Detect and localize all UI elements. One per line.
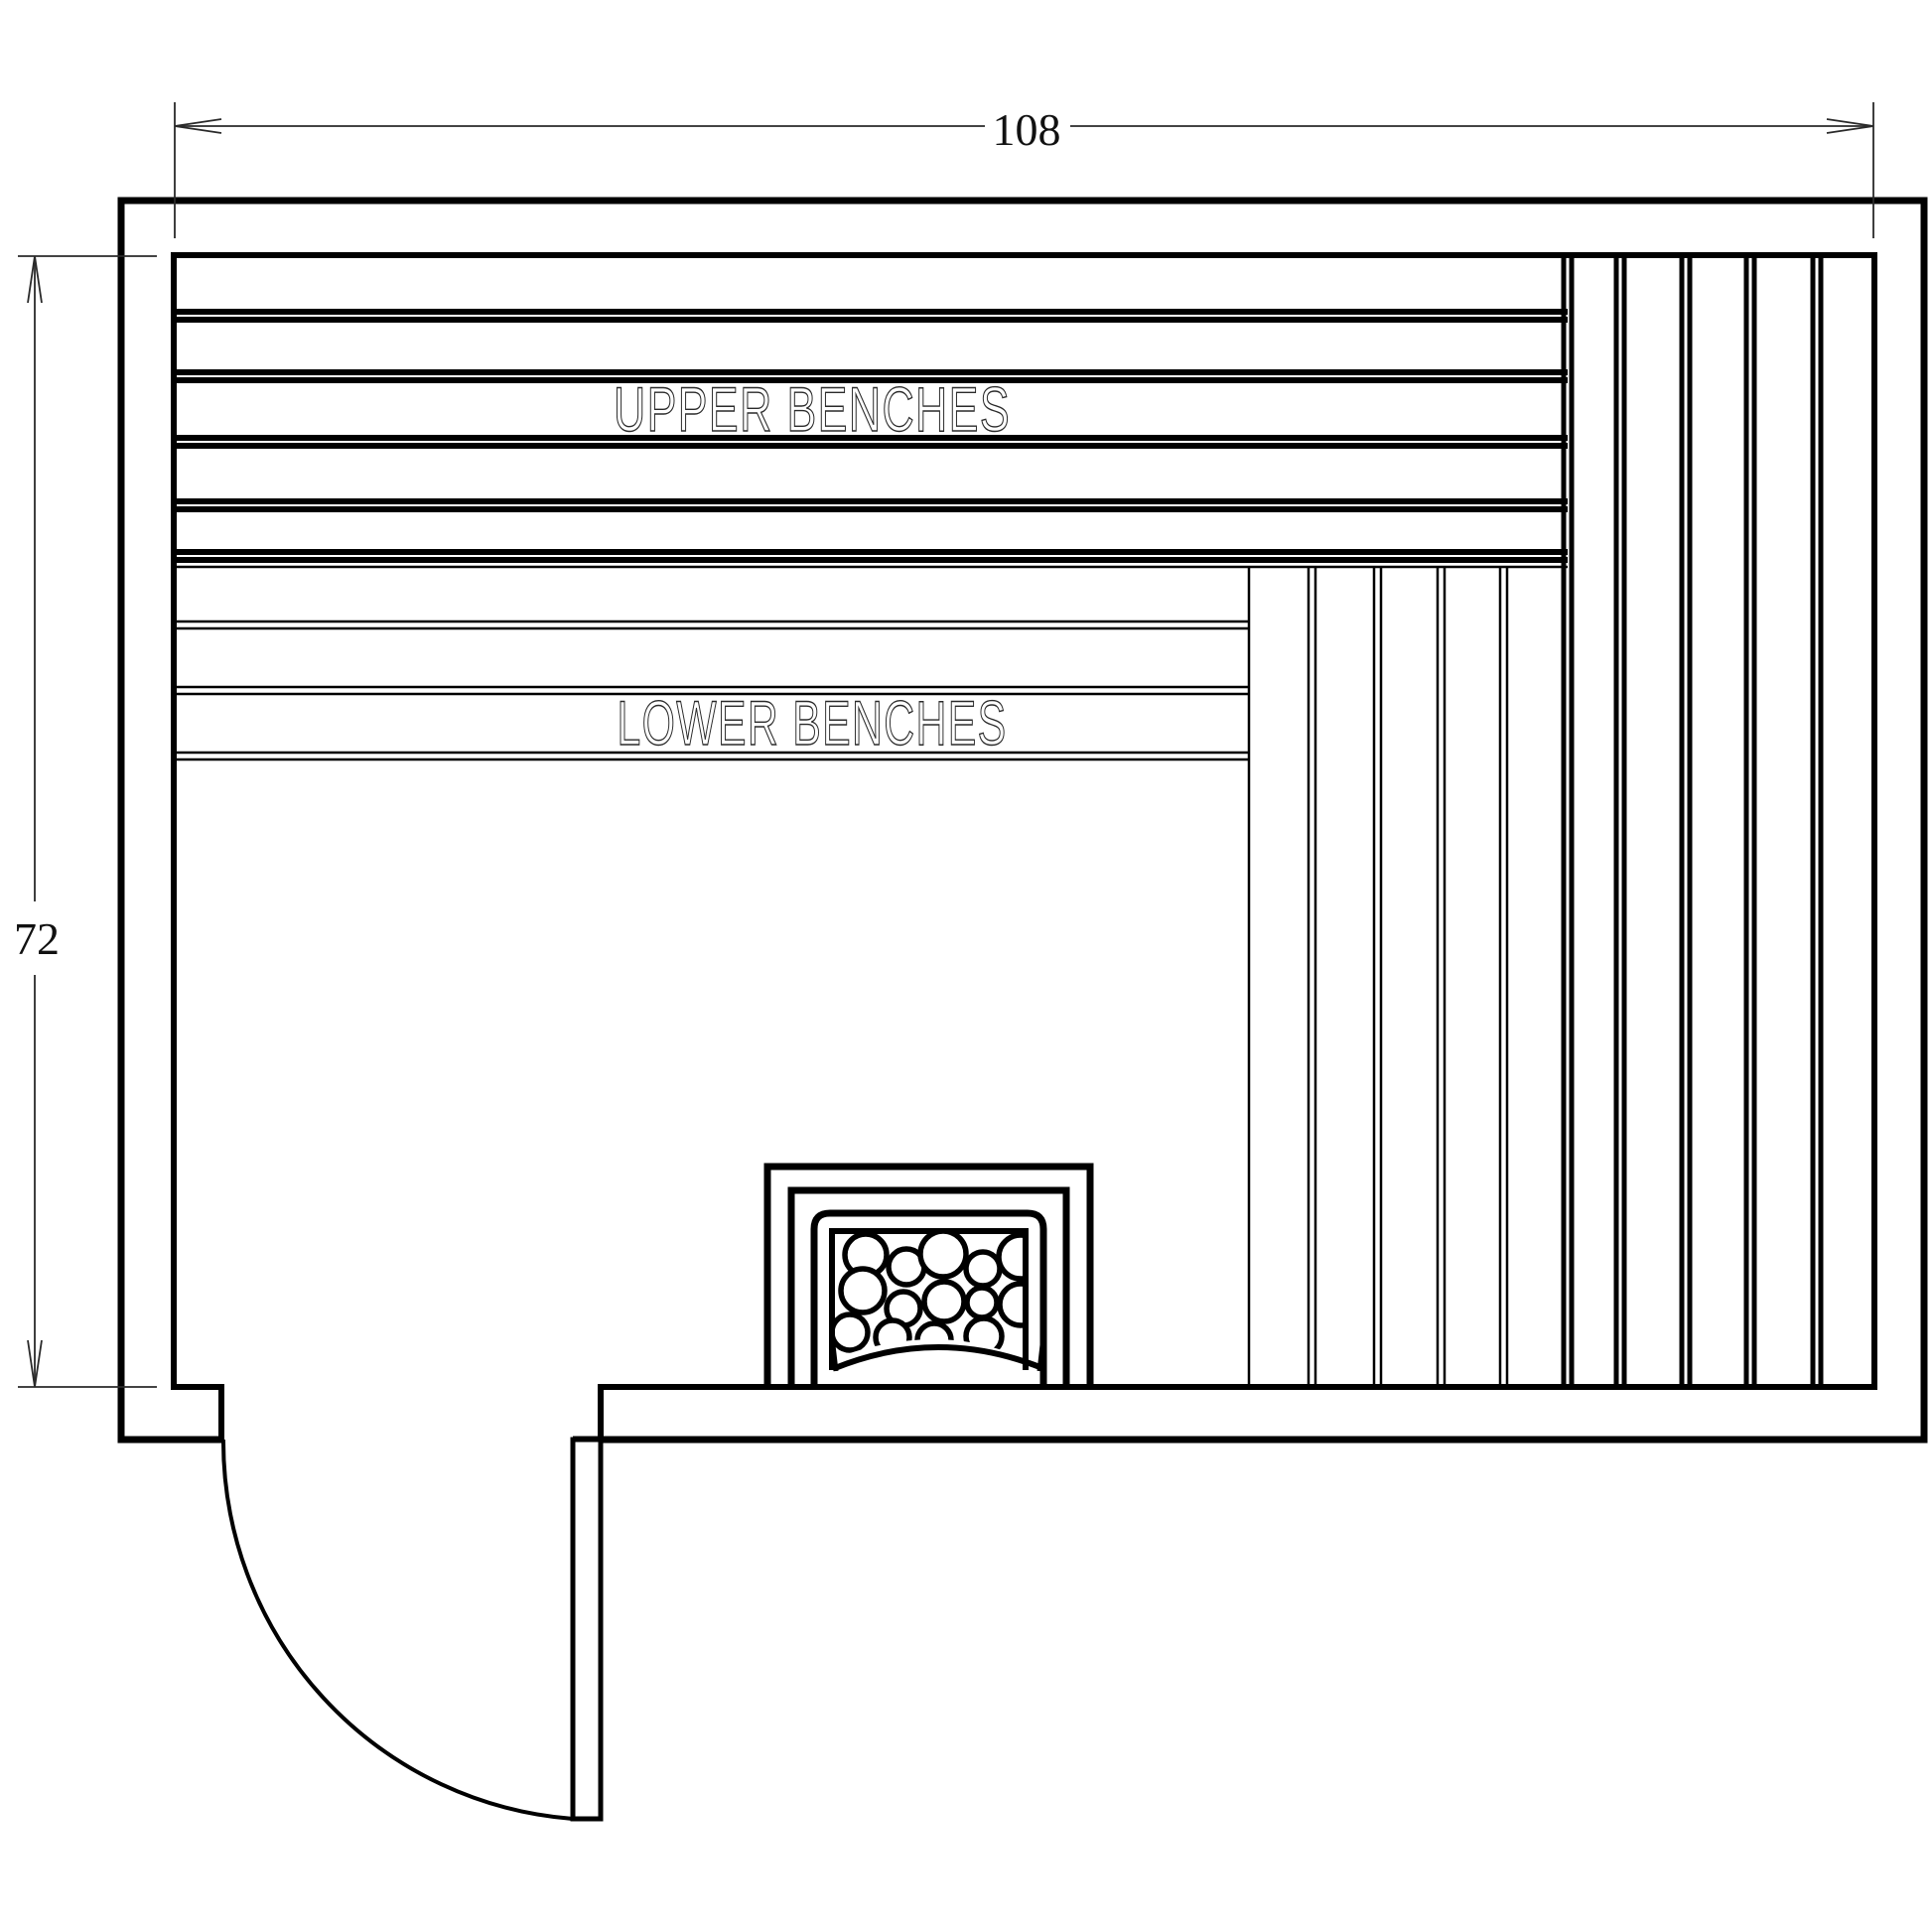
rock — [967, 1288, 997, 1317]
door-leaf — [573, 1440, 601, 1819]
upper-benches-label: UPPER BENCHES — [614, 375, 1011, 445]
lower-benches-label: LOWER BENCHES — [618, 689, 1008, 759]
width-dimension-text: 108 — [993, 104, 1061, 155]
rock — [924, 1282, 964, 1321]
depth-dimension-text: 72 — [14, 913, 60, 964]
sauna-plan-drawing: UPPER BENCHES LOWER BENCHES — [0, 0, 1932, 1932]
drawing-background — [0, 0, 1932, 1932]
floor-plan-canvas: UPPER BENCHES LOWER BENCHES — [0, 0, 1932, 1932]
rock — [841, 1269, 885, 1312]
rock — [832, 1314, 868, 1350]
rock — [920, 1231, 966, 1277]
rock — [966, 1252, 1000, 1286]
